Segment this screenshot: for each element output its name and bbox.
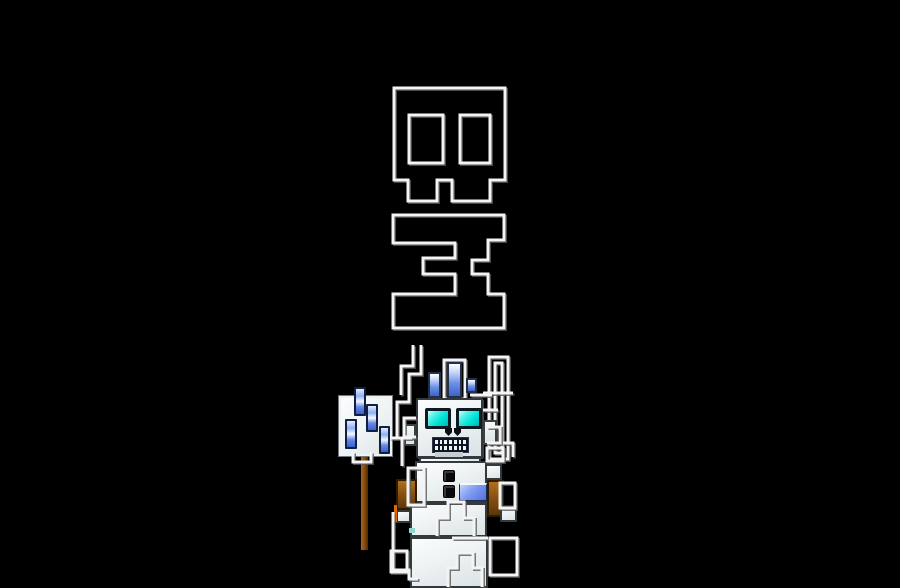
robot-chest-panel xyxy=(459,483,487,501)
sign-bar-3 xyxy=(345,419,357,449)
robot-eye-left-pupil xyxy=(428,411,448,426)
sign-bar-1 xyxy=(354,387,366,416)
tooth xyxy=(459,446,462,450)
tooth xyxy=(444,446,447,450)
tooth xyxy=(435,440,438,444)
letter-glyph-outline xyxy=(393,215,504,328)
sign-bar-2 xyxy=(366,404,378,432)
robot-eye-left xyxy=(425,408,451,429)
sign-pole xyxy=(361,456,368,550)
tooth xyxy=(454,440,457,444)
robot-arm-left-lower xyxy=(396,510,411,523)
robot-antenna-right xyxy=(466,378,477,393)
robot-ear-left xyxy=(404,424,416,446)
glyph3-stair-inner xyxy=(401,345,413,395)
tooth xyxy=(454,446,457,450)
robot-eye-right xyxy=(456,408,482,429)
tooth xyxy=(435,446,438,450)
robot-shoulder-right xyxy=(485,464,502,480)
robot-button-top xyxy=(443,470,455,482)
robot-hips xyxy=(410,503,487,537)
tooth xyxy=(463,440,466,444)
robot-arm-right-lower xyxy=(500,505,517,522)
robot-antenna-middle xyxy=(447,362,462,398)
tooth xyxy=(449,446,452,450)
skull-glyph-outline xyxy=(394,88,505,201)
robot-button-bottom xyxy=(443,485,455,498)
tooth xyxy=(444,440,447,444)
robot-eye-right-pupil xyxy=(459,411,479,426)
tooth xyxy=(463,446,466,450)
mouth-teeth xyxy=(432,437,469,453)
skull-glyph-right-eye-hole xyxy=(460,115,490,163)
tooth xyxy=(440,446,443,450)
pixel-art-canvas xyxy=(0,0,900,588)
sign-bar-4 xyxy=(379,426,390,454)
skull-glyph-left-eye-hole xyxy=(409,115,443,163)
tooth xyxy=(459,440,462,444)
robot-legs xyxy=(410,537,488,588)
tooth xyxy=(440,440,443,444)
tooth xyxy=(449,440,452,444)
robot-antenna-left xyxy=(428,372,441,398)
arm-left-orange-accent xyxy=(394,505,397,522)
teal-chip-fragment xyxy=(409,528,415,533)
robot-ear-right xyxy=(483,420,497,445)
